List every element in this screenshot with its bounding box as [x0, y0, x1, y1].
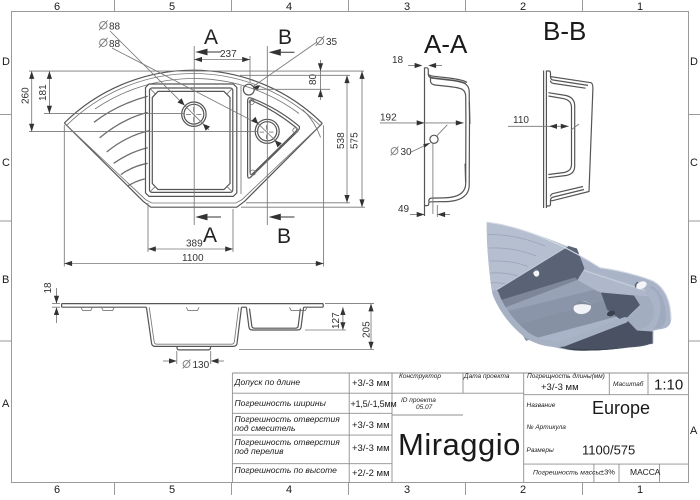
svg-text:B-B: B-B: [543, 16, 586, 46]
svg-text:30: 30: [401, 147, 413, 158]
svg-text:C: C: [2, 157, 10, 169]
svg-text:1: 1: [637, 484, 643, 495]
svg-text:B: B: [690, 274, 697, 286]
svg-text:192: 192: [380, 113, 397, 124]
svg-text:+3/-3 мм: +3/-3 мм: [352, 443, 390, 454]
svg-text:3: 3: [404, 1, 410, 13]
svg-text:Размеры: Размеры: [527, 447, 554, 454]
svg-text:Допуск по длине: Допуск по длине: [234, 377, 301, 387]
svg-text:Miraggio: Miraggio: [398, 427, 521, 462]
svg-text:B: B: [278, 26, 292, 49]
svg-text:4: 4: [286, 484, 292, 495]
svg-text:5: 5: [169, 1, 175, 13]
svg-text:389: 389: [186, 239, 203, 250]
svg-text:B: B: [2, 274, 9, 286]
svg-text:A-A: A-A: [424, 29, 468, 59]
svg-text:A: A: [2, 398, 10, 410]
svg-text:260: 260: [21, 87, 32, 104]
svg-text:18: 18: [392, 55, 404, 66]
svg-text:Конструктор: Конструктор: [399, 373, 441, 380]
svg-text:3: 3: [404, 484, 410, 495]
svg-text:Погрешность ширины: Погрешность ширины: [235, 398, 327, 408]
svg-text:5: 5: [169, 484, 175, 495]
svg-text:D: D: [690, 56, 698, 68]
svg-text:6: 6: [54, 1, 60, 13]
svg-text:05.07: 05.07: [416, 404, 433, 411]
svg-text:237: 237: [220, 49, 237, 60]
svg-text:110: 110: [513, 115, 529, 126]
svg-text:ID проекта: ID проекта: [401, 397, 436, 404]
svg-text:A: A: [203, 224, 217, 247]
svg-text:1100/575: 1100/575: [582, 443, 635, 458]
svg-text:МАССА: МАССА: [630, 467, 661, 477]
svg-text:181: 181: [38, 84, 49, 101]
svg-text:+2/-2 мм: +2/-2 мм: [352, 468, 390, 479]
svg-text:B: B: [277, 225, 291, 248]
svg-text:+3/-3 мм: +3/-3 мм: [352, 420, 390, 431]
svg-text:+1,5/-1,5мм: +1,5/-1,5мм: [351, 399, 397, 409]
svg-text:6: 6: [54, 484, 60, 495]
svg-text:Погрешность массы: Погрешность массы: [533, 470, 601, 477]
svg-text:205: 205: [362, 321, 373, 338]
svg-text:+3/-3 мм: +3/-3 мм: [352, 378, 390, 389]
svg-text:№ Артикула: № Артикула: [527, 424, 567, 431]
svg-text:49: 49: [398, 204, 410, 215]
svg-text:538: 538: [336, 132, 347, 149]
svg-text:88: 88: [109, 39, 121, 50]
svg-text:18: 18: [43, 282, 54, 294]
svg-text:под смеситель: под смеситель: [235, 423, 296, 433]
svg-text:Дата проекта: Дата проекта: [463, 373, 510, 380]
svg-text:Погрешность по высоте: Погрешность по высоте: [235, 465, 338, 475]
svg-text:D: D: [2, 56, 10, 68]
svg-text:1:10: 1:10: [654, 377, 683, 394]
svg-text:под перелив: под перелив: [235, 446, 285, 456]
svg-text:Название: Название: [527, 402, 556, 409]
svg-text:1100: 1100: [182, 253, 204, 264]
svg-text:2: 2: [520, 484, 526, 495]
svg-text:A: A: [204, 26, 218, 49]
svg-text:88: 88: [109, 22, 121, 33]
svg-text:A: A: [690, 425, 698, 437]
svg-text:35: 35: [326, 37, 338, 48]
svg-text:130: 130: [193, 360, 210, 371]
svg-text:2: 2: [520, 1, 526, 13]
svg-text:Масштаб: Масштаб: [613, 380, 644, 388]
svg-text:±3%: ±3%: [600, 468, 615, 477]
svg-text:Погрещность длины(мм): Погрещность длины(мм): [527, 372, 605, 380]
svg-text:+3/-3 мм: +3/-3 мм: [541, 382, 579, 393]
svg-text:4: 4: [286, 1, 292, 13]
svg-text:575: 575: [350, 132, 361, 149]
svg-text:Europe: Europe: [592, 398, 650, 418]
svg-text:127: 127: [331, 312, 342, 329]
svg-text:C: C: [690, 157, 698, 169]
svg-text:1: 1: [637, 1, 643, 13]
